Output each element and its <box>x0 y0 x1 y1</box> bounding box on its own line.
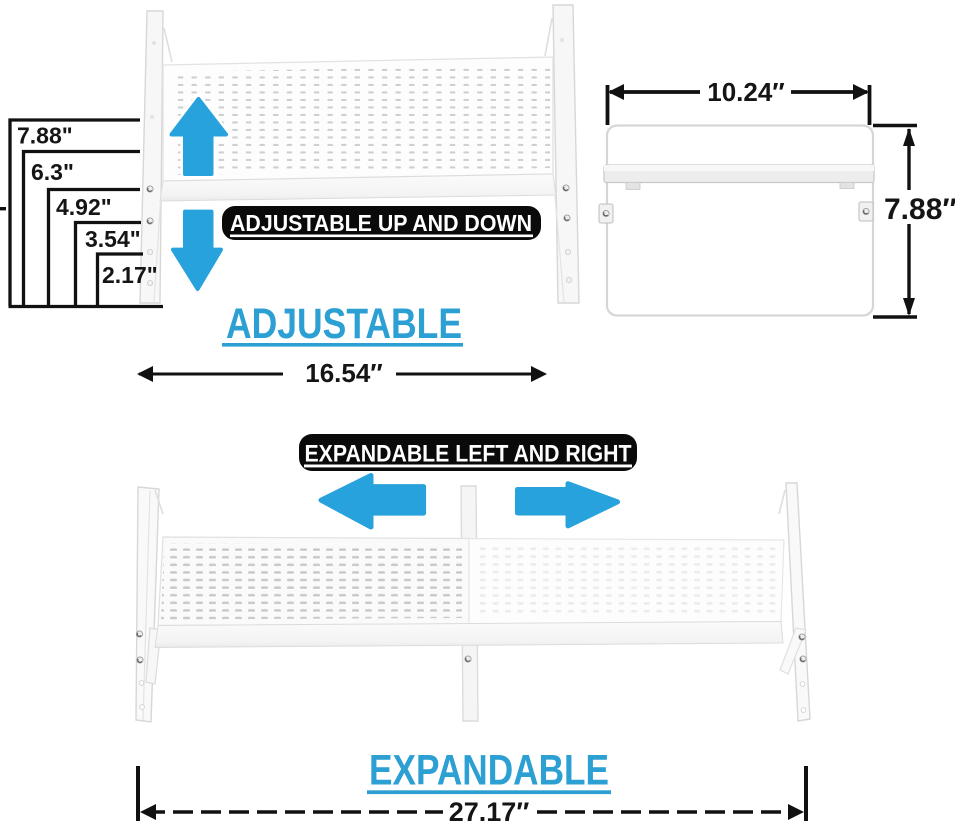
svg-text:ADJUSTABLE UP AND DOWN: ADJUSTABLE UP AND DOWN <box>230 210 532 236</box>
svg-text:7.88": 7.88" <box>17 123 73 149</box>
svg-text:16.54″: 16.54″ <box>305 358 383 388</box>
svg-text:27.17″: 27.17″ <box>449 797 530 826</box>
svg-text:10.24″: 10.24″ <box>707 77 785 107</box>
svg-text:6.3": 6.3" <box>31 159 74 185</box>
svg-text:EXPANDABLE LEFT AND RIGHT: EXPANDABLE LEFT AND RIGHT <box>305 441 632 468</box>
svg-text:4.92": 4.92" <box>56 194 112 220</box>
svg-text:EXPANDABLE: EXPANDABLE <box>369 747 609 795</box>
svg-text:2.17": 2.17" <box>102 262 158 288</box>
svg-text:ADJUSTABLE: ADJUSTABLE <box>226 300 462 348</box>
svg-text:3.54": 3.54" <box>85 226 141 252</box>
svg-text:7.88″: 7.88″ <box>884 193 955 226</box>
